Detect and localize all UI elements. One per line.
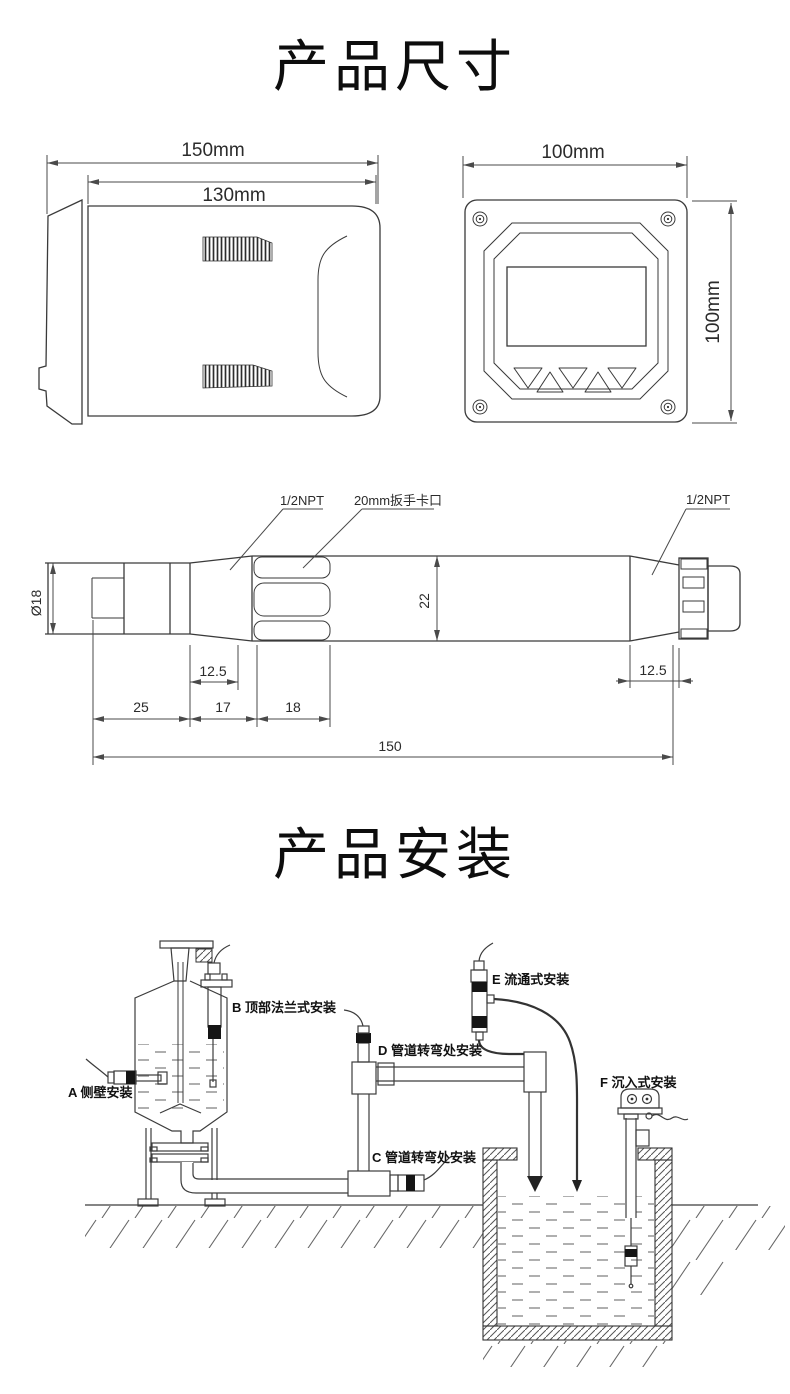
panel-frame-outer (484, 223, 668, 399)
section-title-dimensions: 产品尺寸 (0, 22, 790, 103)
dim-collar-length-label: 17 (215, 699, 231, 715)
left-thread-label: 1/2NPT (280, 493, 324, 508)
dim-body-diameter-label: 22 (416, 593, 432, 609)
install-label-e: E 流通式安装 (492, 972, 569, 987)
install-label-c: C 管道转弯处安装 (372, 1150, 476, 1165)
probe-callouts: 1/2NPT 20mm扳手卡口 1/2NPT (230, 492, 730, 575)
pipe-tee-c (348, 1171, 390, 1196)
pipe-tee-d (352, 1062, 376, 1094)
dim-tip-diameter-label: Ø18 (28, 590, 44, 617)
dim-total-length-label: 150 (378, 738, 402, 754)
controller-front-view: 100mm 100mm (463, 142, 737, 423)
grip-contour (318, 236, 347, 397)
pipe-tee-e (524, 1052, 546, 1092)
flow-arrow-tube (572, 1180, 582, 1192)
sensor-d-cable (344, 1010, 363, 1026)
right-thread-label: 1/2NPT (686, 492, 730, 507)
dim-right-offset-label: 12.5 (639, 662, 666, 678)
handle-bracket (621, 1089, 659, 1108)
sensor-e-cable (479, 943, 493, 961)
mount-bracket (39, 200, 82, 424)
probe-length-dims: 12.5 12.5 25 17 18 150 (93, 620, 693, 765)
install-label-b: B 顶部法兰式安装 (232, 1000, 336, 1015)
install-label-d: D 管道转弯处安装 (378, 1043, 482, 1058)
dim-collar-offset-label: 12.5 (199, 663, 226, 679)
sensor-e-flow-cell (471, 943, 494, 1040)
sensor-d-pipe-elbow (344, 1010, 371, 1062)
cable-end-cap (708, 566, 740, 631)
product-page: 产品尺寸 150mm 130mm (0, 0, 790, 1394)
panel-frame-inner (494, 233, 658, 389)
wrench-slot-label: 20mm扳手卡口 (354, 493, 442, 508)
gland-nut (679, 558, 708, 639)
panel-buttons (514, 368, 636, 392)
controller-side-view: 150mm 130mm (39, 140, 380, 424)
vent-slot-bottom (203, 365, 272, 388)
tank-water (138, 1044, 224, 1113)
sensor-a-cable (86, 1059, 108, 1077)
dim-body-width-label: 130mm (202, 185, 265, 206)
piping (181, 999, 582, 1196)
section-title-installation: 产品安装 (0, 810, 790, 891)
ground (85, 1205, 785, 1367)
sensor-f-cable (652, 1114, 688, 1119)
wrench-flat-slots (254, 557, 330, 640)
mount-clamp (636, 1130, 649, 1146)
dim-front-height-label: 100mm (703, 280, 724, 343)
dim-tip-length-label: 25 (133, 699, 149, 715)
sensor-b-cable (214, 945, 230, 963)
dim-wrench-length-label: 18 (285, 699, 301, 715)
corner-screws (473, 212, 675, 414)
installation-diagram: A 侧壁安装 B 顶部法兰式安装 C 管道转弯处安装 D 管道转弯处安装 E 流… (0, 900, 790, 1394)
dim-overall-width-label: 150mm (181, 140, 244, 161)
install-label-a: A 侧壁安装 (68, 1085, 133, 1100)
button-down-2 (559, 368, 587, 388)
dimension-drawings: 150mm 130mm (0, 120, 790, 790)
lcd-screen (507, 267, 646, 346)
flow-cell-inlet-tube (479, 1040, 524, 1054)
vent-slot-top (203, 237, 272, 261)
probe-side-view: 1/2NPT 20mm扳手卡口 1/2NPT Ø18 22 (28, 492, 740, 765)
button-down-1 (514, 368, 542, 388)
bottom-flange (150, 1143, 208, 1162)
flow-arrow-pipe (527, 1176, 543, 1192)
button-down-3 (608, 368, 636, 388)
install-label-f: F 沉入式安装 (600, 1075, 677, 1090)
dim-front-width-label: 100mm (541, 142, 604, 163)
